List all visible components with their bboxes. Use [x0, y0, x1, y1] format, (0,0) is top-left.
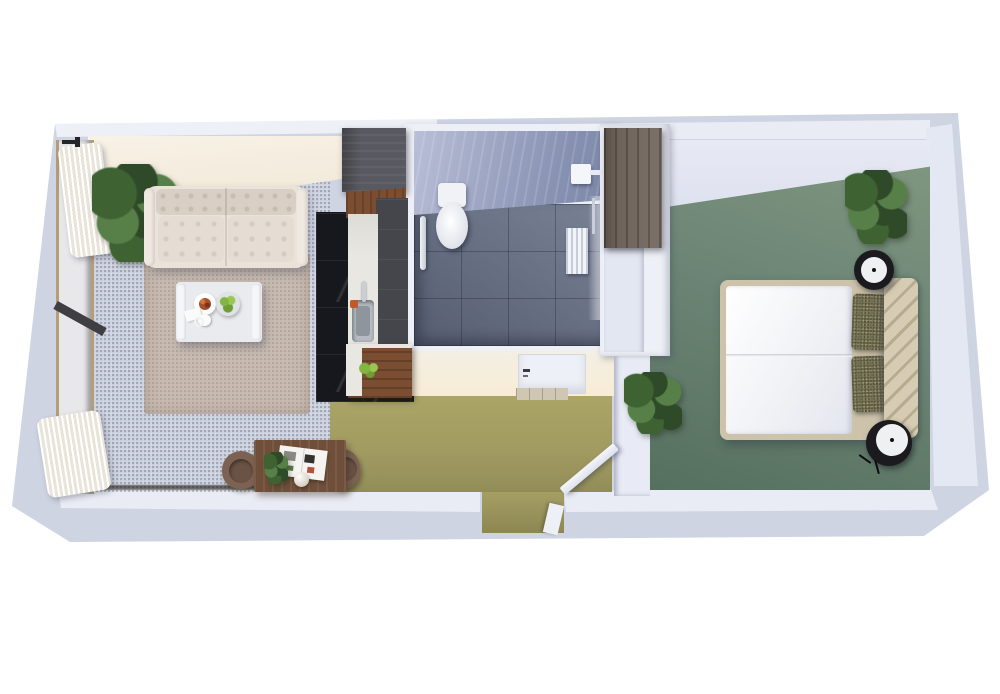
coffee-table [176, 282, 262, 342]
kitchen-tall-cabinet [342, 128, 406, 192]
bed [720, 280, 890, 440]
toilet-bowl [436, 203, 468, 249]
cup [198, 314, 211, 326]
table-plant [264, 452, 288, 484]
wardrobe [604, 128, 662, 248]
nightstand [866, 420, 912, 466]
sink-basin [356, 306, 370, 336]
shower-rail [592, 198, 595, 234]
green-apples [358, 362, 380, 378]
hallway-plant [624, 372, 682, 434]
nightstand-top [876, 424, 908, 456]
duvet [726, 286, 852, 434]
nightstand-knob [872, 268, 876, 272]
faucet [362, 282, 366, 302]
door-threshold [516, 388, 568, 400]
curtain-bottom [36, 409, 112, 498]
hallway-carpet [330, 392, 612, 492]
duvet-fold [726, 354, 852, 357]
shower-arm [590, 170, 603, 175]
nightstand-top [861, 257, 887, 283]
counter-item [350, 300, 358, 308]
shower-grate [566, 228, 588, 274]
floorplan-scene [0, 0, 1000, 694]
sphere-lamp [294, 472, 309, 487]
side-table [254, 440, 346, 492]
door-hinge [523, 375, 528, 377]
sofa-seat-cushion [158, 216, 224, 262]
sofa-armrest [144, 188, 155, 266]
bedroom-plant [845, 170, 907, 244]
fruit-bowl [216, 292, 240, 316]
chair-seat [229, 459, 253, 483]
coffee-table-rail [252, 284, 261, 340]
pillow [851, 355, 887, 412]
sofa-center-seam [225, 188, 227, 266]
food-on-plate [199, 298, 211, 310]
door-handle [523, 369, 530, 372]
nightstand-knob [890, 438, 894, 442]
shower-head [571, 164, 591, 184]
grab-bar [420, 216, 426, 270]
headboard [884, 278, 918, 438]
sofa-armrest [297, 188, 308, 266]
nightstand [854, 250, 894, 290]
wall-niche [604, 248, 644, 352]
sofa [146, 186, 306, 268]
sofa-seat-cushion [228, 216, 294, 262]
pillow [851, 293, 887, 350]
kitchen-cabinet-column [376, 198, 408, 350]
curtain-rod-bracket [62, 140, 78, 144]
